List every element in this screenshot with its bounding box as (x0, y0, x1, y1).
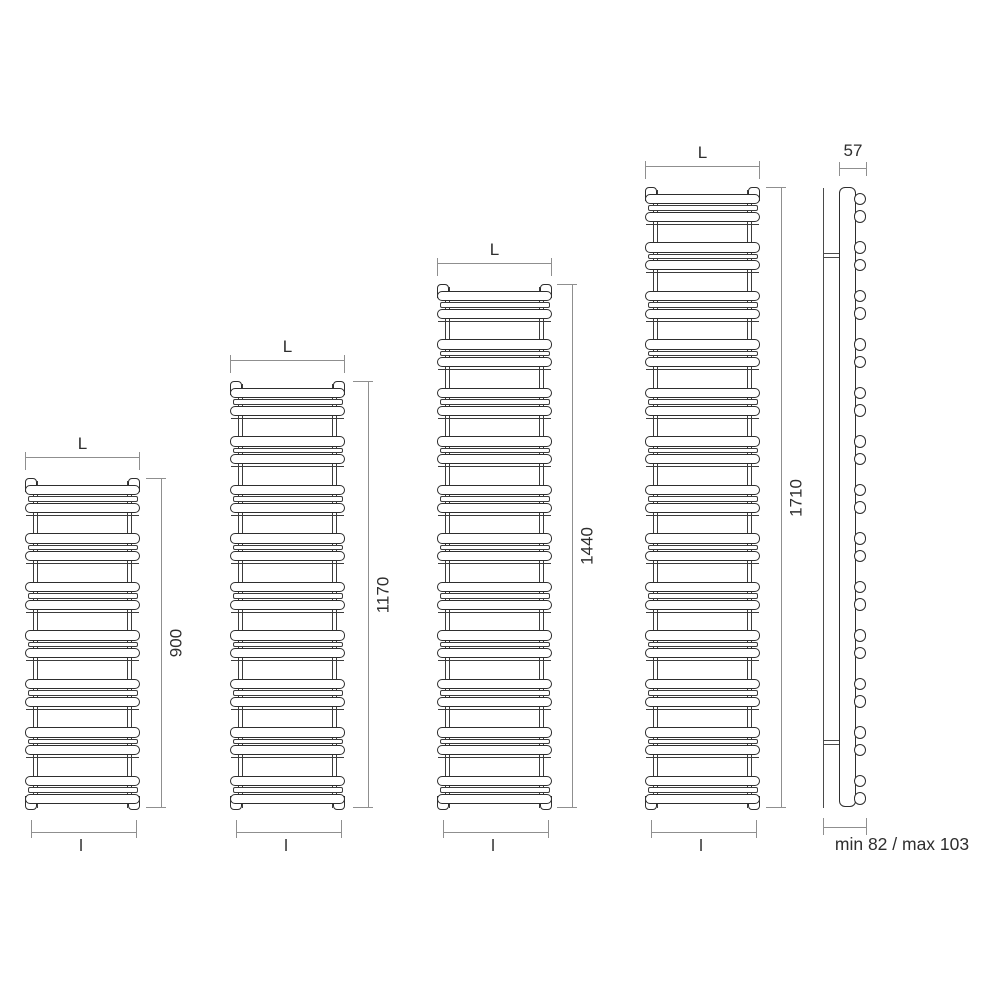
bar-end-circle (854, 678, 867, 691)
towel-bar-gap-strip (233, 448, 343, 454)
towel-bar-gap-strip (233, 399, 343, 405)
rear-tube-line (646, 757, 759, 758)
towel-bar-gap-strip (233, 787, 343, 793)
rear-tube-line (231, 660, 344, 661)
towel-bar-gap-strip (440, 448, 550, 454)
towel-bar (25, 600, 140, 610)
towel-bar (645, 727, 760, 738)
towel-bar-gap-strip (440, 690, 550, 696)
towel-bar (230, 745, 345, 755)
bar-end-circle (854, 581, 867, 594)
towel-bar (230, 454, 345, 464)
towel-bar-gap-strip (648, 593, 758, 599)
towel-bar (25, 630, 140, 641)
rear-tube-line (646, 612, 759, 613)
towel-bar (437, 309, 552, 319)
rear-tube-line (26, 612, 139, 613)
bar-end-circle (854, 338, 867, 351)
towel-bar (25, 745, 140, 755)
towel-bar-gap-strip (648, 642, 758, 648)
bar-end-circle (854, 695, 867, 708)
towel-bar-gap-strip (648, 496, 758, 502)
rear-tube-line (646, 515, 759, 516)
towel-bar (230, 794, 345, 804)
towel-bar-gap-strip (440, 739, 550, 745)
bar-end-circle (854, 647, 867, 660)
bar-end-circle (854, 435, 867, 448)
towel-bar-gap-strip (648, 351, 758, 357)
bar-end-circle (854, 726, 867, 739)
towel-bar (230, 648, 345, 658)
bar-end-circle (854, 290, 867, 303)
towel-bar-gap-strip (648, 254, 758, 260)
towel-bar (230, 727, 345, 738)
towel-bar (437, 582, 552, 593)
wall-distance-dim-tick-left (823, 818, 824, 835)
towel-bar-gap-strip (233, 690, 343, 696)
towel-bar (25, 794, 140, 804)
towel-bar (645, 794, 760, 804)
technical-drawing-canvas: L900lL1170lL1440lL1710l57min 82 / max 10… (0, 0, 1000, 1000)
towel-bar-gap-strip (28, 496, 138, 502)
towel-bar-gap-strip (233, 739, 343, 745)
depth-dim-line (839, 168, 867, 169)
towel-bar (645, 697, 760, 707)
bar-end-circle (854, 501, 867, 514)
towel-bar-gap-strip (28, 739, 138, 745)
towel-bar-gap-strip (648, 787, 758, 793)
rear-tube-line (231, 515, 344, 516)
towel-bar-gap-strip (440, 787, 550, 793)
towel-bar (645, 503, 760, 513)
towel-bar (230, 679, 345, 690)
bar-end-circle (854, 532, 867, 545)
towel-bar-gap-strip (440, 593, 550, 599)
rear-tube-line (646, 466, 759, 467)
towel-bar-gap-strip (28, 545, 138, 551)
bar-end-circle (854, 744, 867, 757)
towel-bar (437, 776, 552, 787)
towel-bar-gap-strip (440, 642, 550, 648)
bar-end-circle (854, 598, 867, 611)
wall-bracket-bottom (824, 744, 839, 745)
bar-end-circle (854, 775, 867, 788)
towel-bar (645, 533, 760, 544)
rear-tube-line (26, 515, 139, 516)
towel-bar (437, 745, 552, 755)
towel-bar (645, 485, 760, 496)
towel-bar (437, 794, 552, 804)
depth-dim-label: 57 (844, 142, 863, 159)
towel-bar-gap-strip (233, 593, 343, 599)
towel-bar (437, 648, 552, 658)
depth-dim-tick-left (839, 162, 840, 176)
towel-bar-gap-strip (648, 545, 758, 551)
towel-bar-gap-strip (440, 496, 550, 502)
towel-bar (25, 776, 140, 787)
bar-end-circle (854, 259, 867, 272)
rear-tube-line (438, 369, 551, 370)
towel-bar (645, 260, 760, 270)
towel-bar (645, 291, 760, 302)
towel-bar (437, 291, 552, 302)
towel-bar-gap-strip (233, 496, 343, 502)
towel-bar (437, 727, 552, 738)
towel-bar (645, 582, 760, 593)
wall-distance-dim-tick-right (866, 818, 867, 835)
rear-tube-line (438, 660, 551, 661)
towel-bar (645, 242, 760, 253)
towel-bar (645, 630, 760, 641)
towel-bar-gap-strip (648, 205, 758, 211)
towel-bar (645, 551, 760, 561)
rear-tube-line (231, 612, 344, 613)
rear-tube-line (26, 757, 139, 758)
rear-tube-line (438, 321, 551, 322)
towel-bar (230, 485, 345, 496)
towel-bar (25, 503, 140, 513)
towel-bar (437, 679, 552, 690)
towel-bar (230, 406, 345, 416)
towel-bar (645, 745, 760, 755)
towel-bar-gap-strip (233, 545, 343, 551)
rear-tube-line (231, 709, 344, 710)
rear-tube-line (231, 563, 344, 564)
towel-bar-gap-strip (440, 399, 550, 405)
rear-tube-line (438, 418, 551, 419)
rear-tube-line (26, 709, 139, 710)
towel-bar (230, 503, 345, 513)
towel-bar (437, 436, 552, 447)
rear-tube-line (438, 757, 551, 758)
side-rail-profile (839, 187, 856, 807)
wall-line (823, 188, 824, 808)
towel-bar (437, 339, 552, 350)
depth-dim-tick-right (866, 162, 867, 176)
towel-bar-gap-strip (28, 642, 138, 648)
towel-bar (645, 406, 760, 416)
towel-bar (230, 436, 345, 447)
towel-bar-gap-strip (648, 739, 758, 745)
bar-end-circle (854, 404, 867, 417)
towel-bar (645, 679, 760, 690)
rear-tube-line (646, 321, 759, 322)
towel-bar (437, 388, 552, 399)
towel-bar (25, 485, 140, 496)
towel-bar (645, 212, 760, 222)
towel-bar (25, 533, 140, 544)
towel-bar-gap-strip (440, 302, 550, 308)
towel-bar (25, 582, 140, 593)
rear-tube-line (438, 709, 551, 710)
towel-bar (437, 454, 552, 464)
towel-bar-gap-strip (28, 593, 138, 599)
towel-bar (230, 533, 345, 544)
towel-bar (645, 309, 760, 319)
rear-tube-line (646, 418, 759, 419)
towel-bar (437, 406, 552, 416)
bar-end-circle (854, 484, 867, 497)
bar-end-circle (854, 453, 867, 466)
towel-bar-gap-strip (648, 448, 758, 454)
towel-bar (437, 697, 552, 707)
wall-distance-dim-line (823, 827, 867, 828)
towel-bar (645, 776, 760, 787)
towel-bar (25, 727, 140, 738)
rear-tube-line (231, 466, 344, 467)
rear-tube-line (26, 563, 139, 564)
towel-bar (230, 388, 345, 399)
bar-end-circle (854, 792, 867, 805)
towel-bar (645, 388, 760, 399)
towel-bar (230, 776, 345, 787)
bar-end-circle (854, 629, 867, 642)
towel-bar (645, 600, 760, 610)
towel-bar (230, 582, 345, 593)
towel-bar (437, 533, 552, 544)
bar-end-circle (854, 550, 867, 563)
towel-bar (230, 600, 345, 610)
towel-bar (230, 551, 345, 561)
towel-bar (25, 697, 140, 707)
towel-bar-gap-strip (440, 351, 550, 357)
rear-tube-line (438, 612, 551, 613)
towel-bar (25, 648, 140, 658)
bar-end-circle (854, 193, 867, 206)
towel-bar-gap-strip (440, 545, 550, 551)
rear-tube-line (646, 709, 759, 710)
rear-tube-line (646, 272, 759, 273)
towel-bar-gap-strip (28, 787, 138, 793)
towel-bar-gap-strip (28, 690, 138, 696)
towel-bar (645, 436, 760, 447)
towel-bar-gap-strip (648, 690, 758, 696)
towel-bar (645, 357, 760, 367)
towel-bar (437, 551, 552, 561)
wall-bracket-bottom (824, 740, 839, 741)
towel-bar (230, 697, 345, 707)
bar-end-circle (854, 356, 867, 369)
rear-tube-line (231, 757, 344, 758)
rear-tube-line (438, 515, 551, 516)
rear-tube-line (231, 418, 344, 419)
towel-bar (437, 485, 552, 496)
rear-tube-line (646, 224, 759, 225)
towel-bar (437, 503, 552, 513)
rear-tube-line (646, 563, 759, 564)
wall-bracket-top (824, 253, 839, 254)
towel-bar-gap-strip (648, 302, 758, 308)
bar-end-circle (854, 241, 867, 254)
towel-bar-gap-strip (233, 642, 343, 648)
rear-tube-line (646, 660, 759, 661)
wall-bracket-top (824, 257, 839, 258)
towel-bar (25, 679, 140, 690)
towel-bar (645, 648, 760, 658)
towel-bar (25, 551, 140, 561)
rear-tube-line (26, 660, 139, 661)
towel-bar (437, 357, 552, 367)
wall-distance-label: min 82 / max 103 (835, 836, 969, 854)
bar-end-circle (854, 307, 867, 320)
towel-bar (645, 339, 760, 350)
towel-bar (437, 630, 552, 641)
towel-bar (437, 600, 552, 610)
towel-bar (230, 630, 345, 641)
bar-end-circle (854, 387, 867, 400)
towel-bar-gap-strip (648, 399, 758, 405)
towel-bar (645, 454, 760, 464)
rear-tube-line (646, 369, 759, 370)
bar-end-circle (854, 210, 867, 223)
rear-tube-line (438, 466, 551, 467)
rear-tube-line (438, 563, 551, 564)
towel-bar (645, 194, 760, 205)
